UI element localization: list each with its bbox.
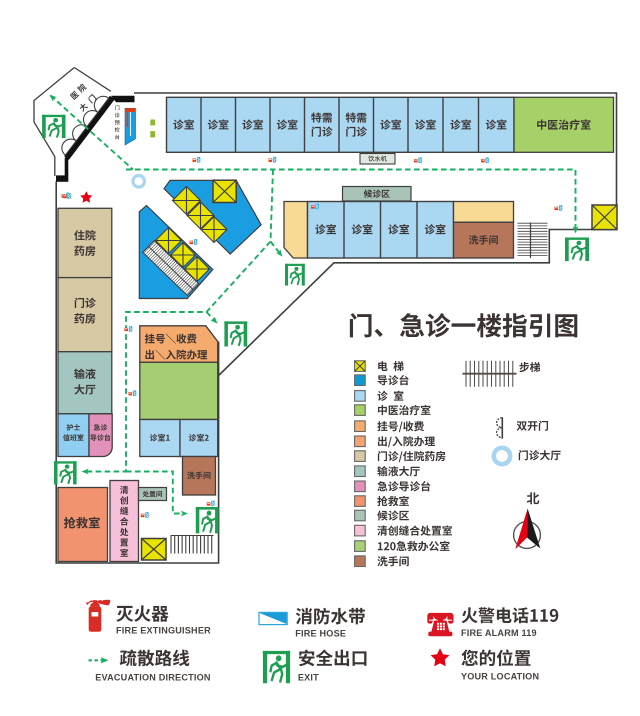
svg-text:FIRE EXTINGUISHER: FIRE EXTINGUISHER (116, 625, 211, 635)
svg-text:YOUR LOCATION: YOUR LOCATION (461, 672, 539, 682)
svg-text:FIRE ALARM 119: FIRE ALARM 119 (461, 628, 537, 638)
svg-text:EVACUATION DIRECTION: EVACUATION DIRECTION (95, 673, 210, 683)
svg-text:FIRE HOSE: FIRE HOSE (295, 629, 346, 639)
svg-text:EXIT: EXIT (298, 673, 319, 683)
